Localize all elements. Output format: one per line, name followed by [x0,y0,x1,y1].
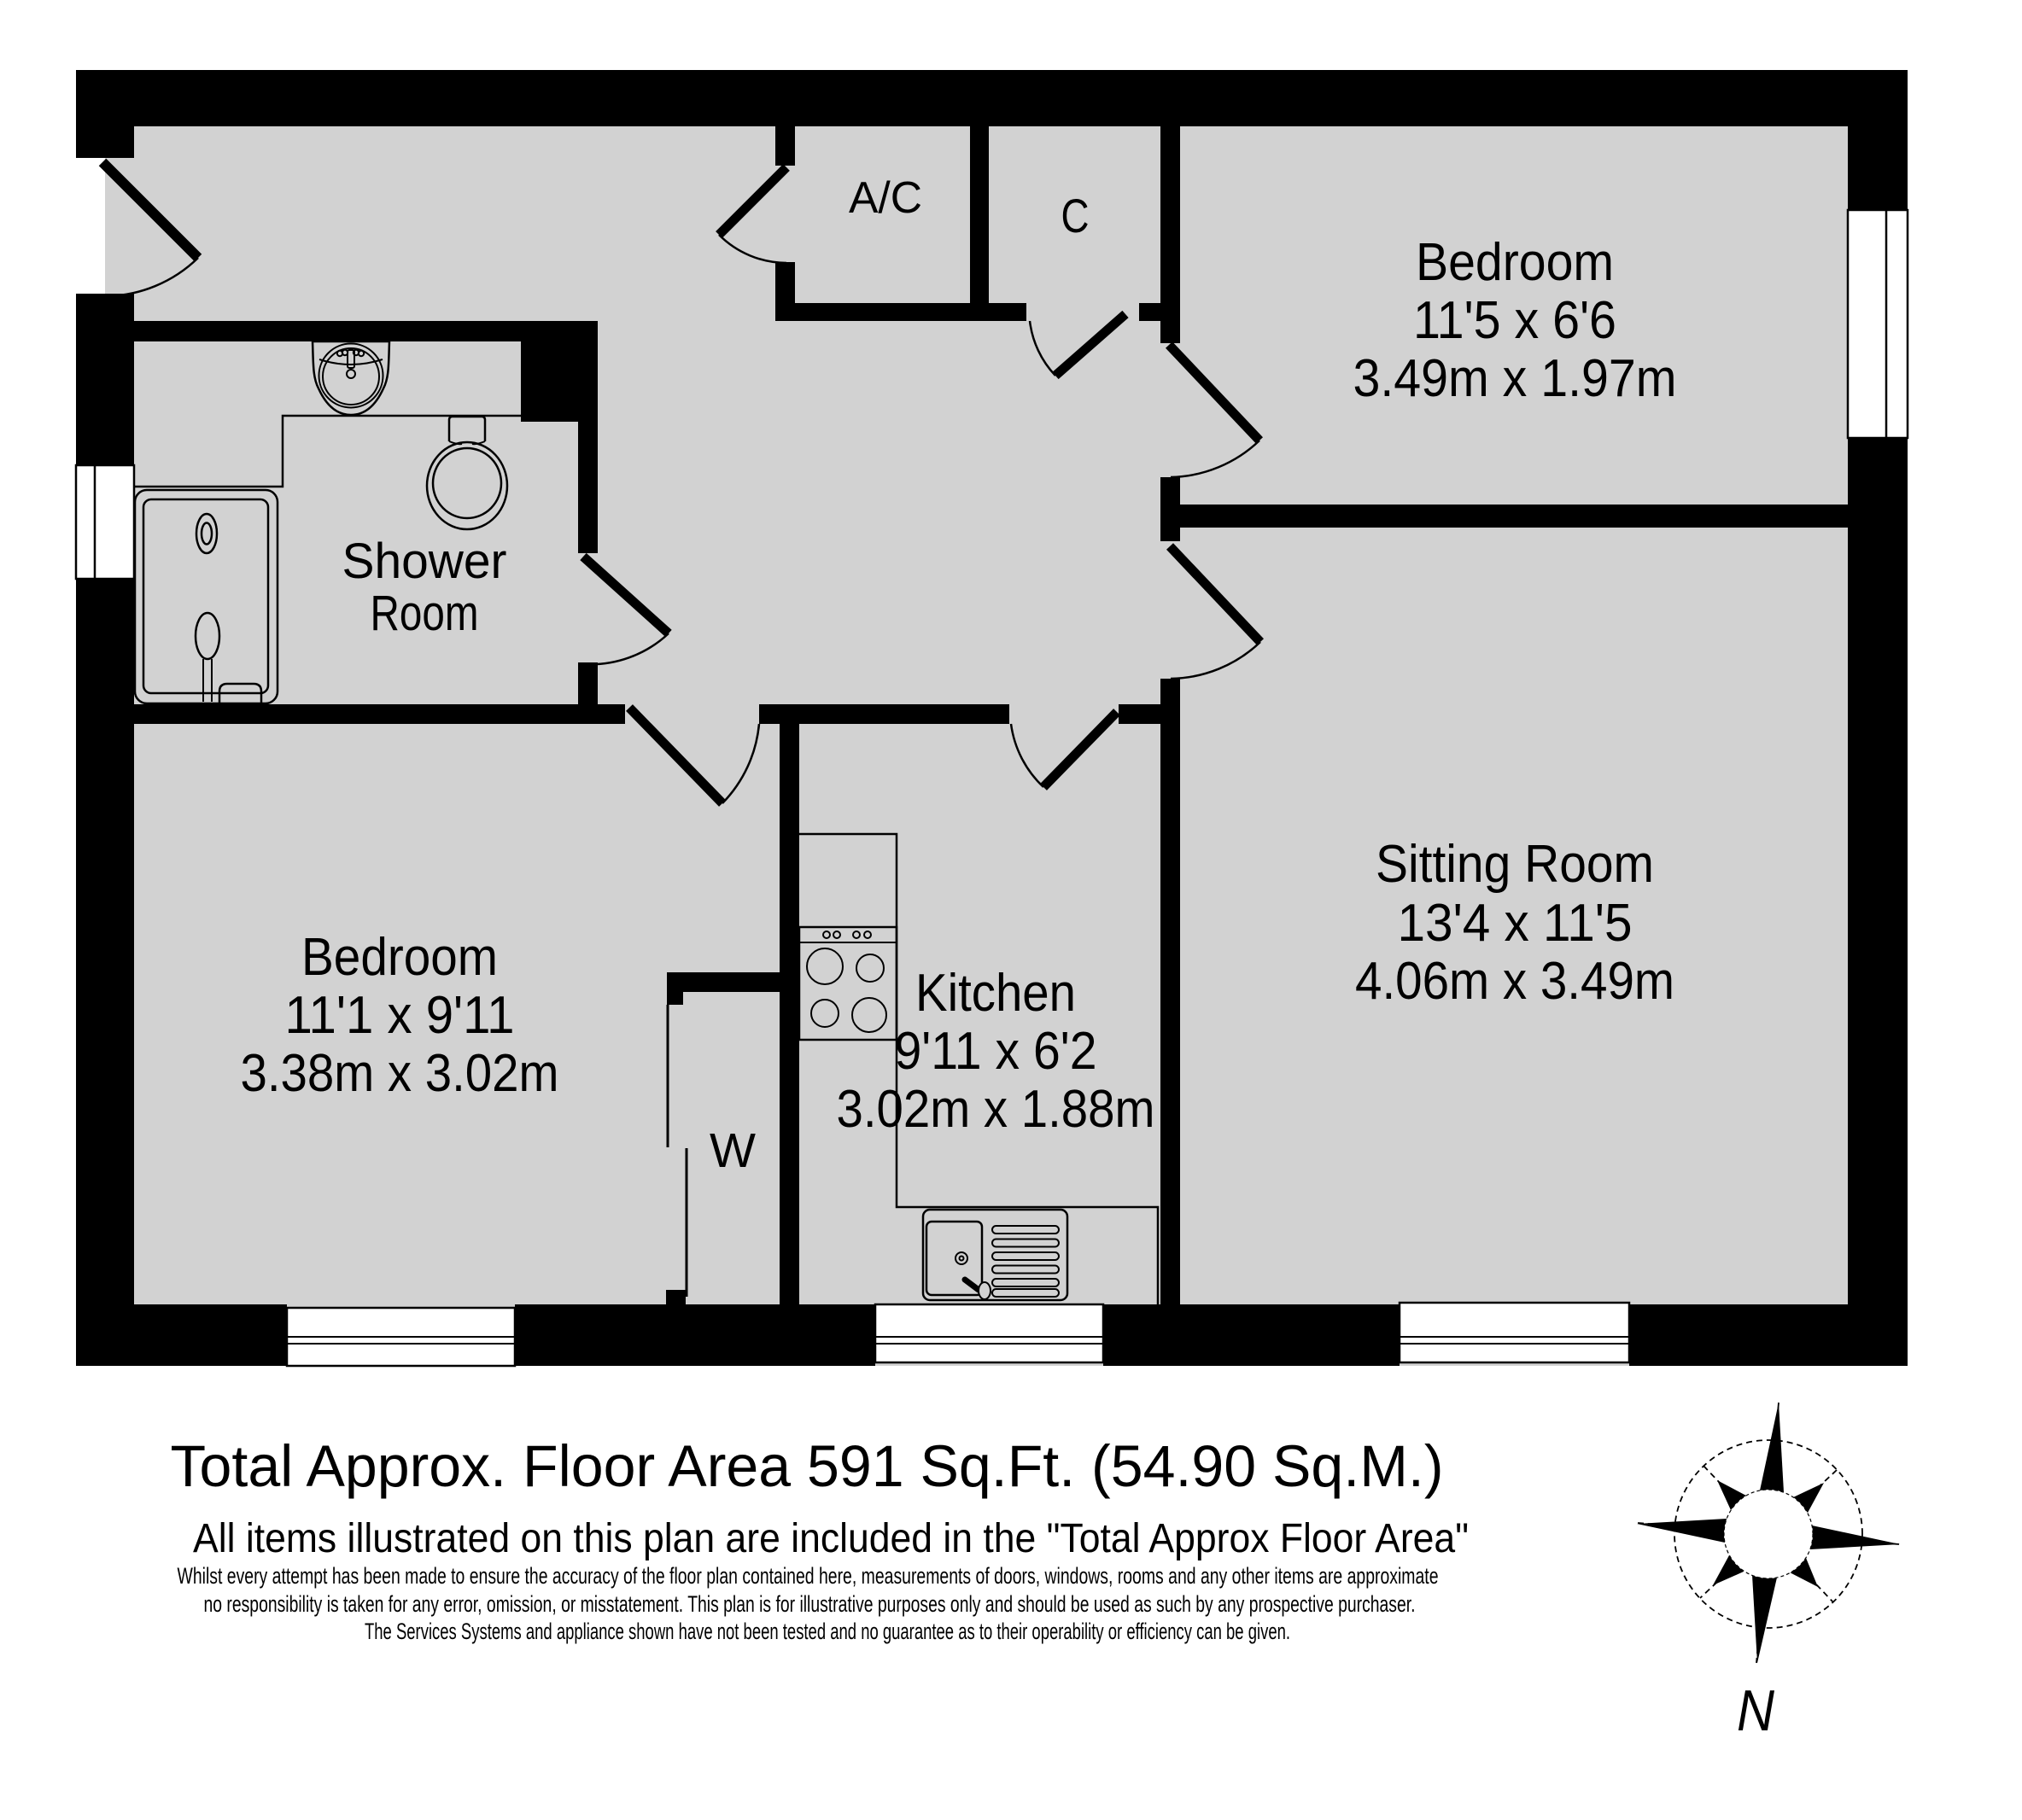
svg-text:Kitchen: Kitchen [915,964,1076,1023]
svg-text:3.49m x 1.97m: 3.49m x 1.97m [1353,349,1677,408]
svg-text:3.02m x 1.88m: 3.02m x 1.88m [837,1080,1155,1139]
svg-text:W: W [710,1123,756,1178]
svg-text:C: C [1061,189,1090,242]
svg-text:3.38m x 3.02m: 3.38m x 3.02m [241,1044,559,1103]
svg-text:13'4 x 11'5: 13'4 x 11'5 [1398,894,1633,953]
svg-text:N: N [1737,1678,1775,1743]
svg-text:Total Approx. Floor Area 591 S: Total Approx. Floor Area 591 Sq.Ft. (54.… [171,1433,1444,1499]
svg-text:Bedroom: Bedroom [1416,233,1614,292]
svg-text:4.06m x 3.49m: 4.06m x 3.49m [1355,952,1674,1011]
svg-text:Whilst every attempt has been: Whilst every attempt has been made to en… [178,1563,1439,1589]
svg-text:A/C: A/C [849,173,922,223]
svg-text:Room: Room [371,586,479,641]
svg-text:11'1 x 9'11: 11'1 x 9'11 [285,986,515,1045]
svg-text:All items illustrated on this: All items illustrated on this plan are i… [193,1516,1469,1561]
svg-text:Shower: Shower [342,534,507,589]
svg-text:Sitting Room: Sitting Room [1376,835,1654,894]
svg-text:The Services Systems and appli: The Services Systems and appliance shown… [365,1619,1290,1644]
svg-text:Bedroom: Bedroom [301,928,498,987]
svg-text:11'5 x 6'6: 11'5 x 6'6 [1413,291,1616,350]
svg-text:no responsibility is taken for: no responsibility is taken for any error… [204,1591,1416,1617]
svg-text:9'11 x 6'2: 9'11 x 6'2 [895,1022,1097,1081]
